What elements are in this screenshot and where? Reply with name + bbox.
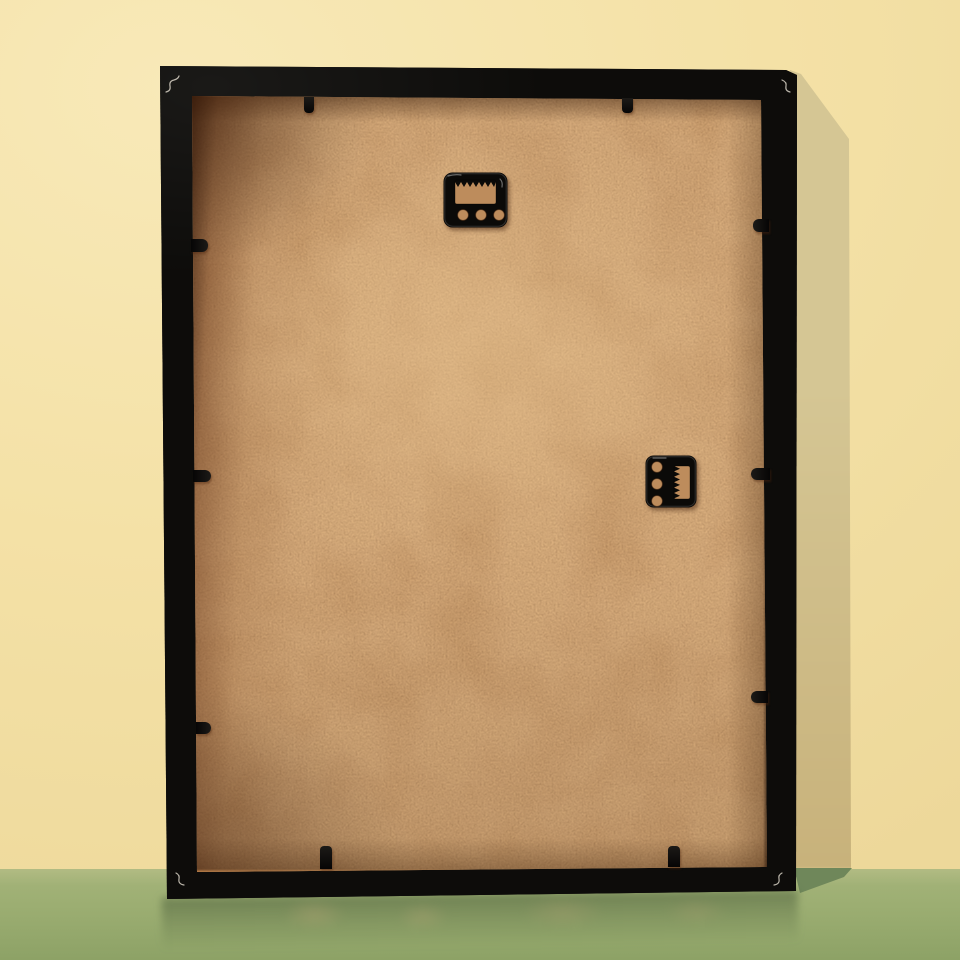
corner-scuff-bottom-left	[173, 869, 195, 891]
retainer-tab-right-2	[751, 468, 770, 480]
corner-scuff-bottom-right	[764, 870, 786, 892]
retainer-tab-bottom-1	[320, 846, 332, 869]
retainer-tab-top-1	[304, 97, 314, 113]
sawtooth-hanger-side	[645, 455, 697, 508]
corner-scuff-top-right	[771, 74, 793, 96]
retainer-tab-left-2	[193, 470, 211, 482]
sawtooth-hanger-top	[443, 172, 508, 228]
retainer-tab-left-3	[196, 722, 211, 734]
retainer-tab-left-1	[191, 239, 208, 252]
corner-scuff-top-left	[163, 72, 187, 96]
retainer-tab-bottom-2	[668, 846, 680, 867]
frame-reflection-on-floor	[162, 890, 799, 956]
retainer-tab-top-2	[622, 98, 633, 113]
photo-scene	[0, 0, 960, 960]
retainer-tab-right-3	[751, 691, 768, 703]
retainer-tab-right-1	[753, 219, 769, 232]
